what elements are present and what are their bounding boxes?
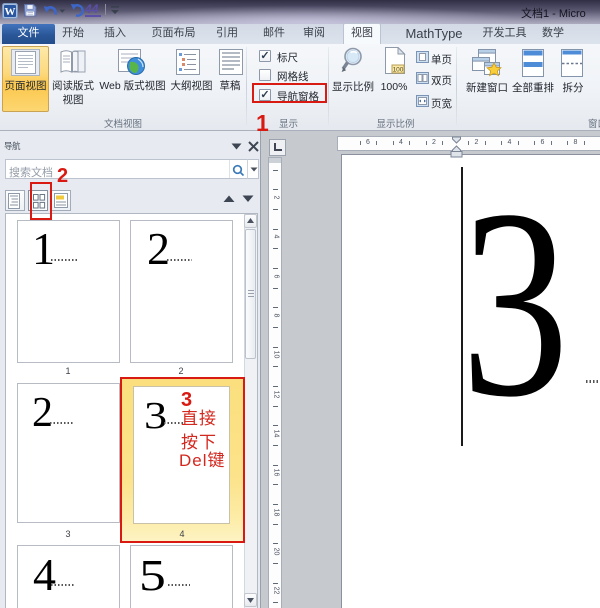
svg-text:W: W <box>5 6 16 18</box>
svg-text:100: 100 <box>393 67 404 74</box>
